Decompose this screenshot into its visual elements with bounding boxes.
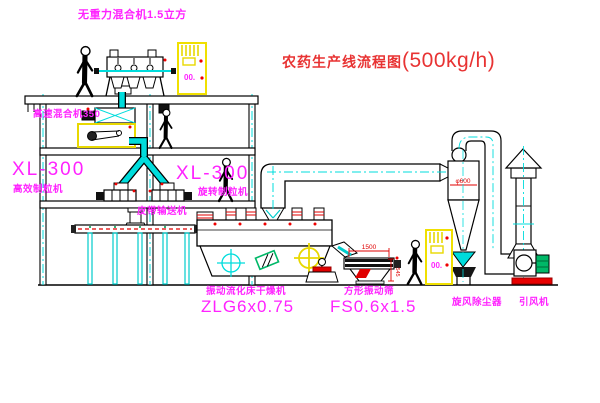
high-speed-mixer-label: 高速混合机350 bbox=[33, 110, 100, 120]
svg-text:545: 545 bbox=[394, 267, 400, 276]
diagram-title-text: 农药生产线流程图 bbox=[282, 54, 402, 70]
belt-conveyor bbox=[71, 225, 199, 284]
fan-label: 引风机 bbox=[519, 298, 549, 308]
granulator-right bbox=[149, 183, 192, 201]
gravity-mixer bbox=[94, 50, 176, 96]
control-cabinet-1: 00. bbox=[178, 43, 206, 94]
person-ground bbox=[408, 240, 422, 284]
granulator-left bbox=[96, 183, 136, 201]
person-floor2 bbox=[160, 109, 172, 148]
granulator-right-label: 旋转制粒机 bbox=[198, 188, 248, 198]
screen-label: 方形振动筛 bbox=[344, 287, 394, 297]
dryer-model-label: ZLG6x0.75 bbox=[201, 298, 294, 315]
induced-draft-fan bbox=[512, 250, 552, 284]
cyclone-label: 旋风除尘器 bbox=[452, 298, 502, 308]
dryer-label: 振动流化床干燥机 bbox=[206, 287, 286, 297]
cabinet2-display: 00. bbox=[431, 261, 442, 270]
granulator-right-model: XL-300 bbox=[176, 164, 249, 183]
control-cabinet-2: 00. bbox=[426, 230, 452, 284]
cabinet1-display: 00. bbox=[184, 73, 195, 82]
belt-conveyor-label: 皮带输送机 bbox=[137, 207, 187, 217]
exhaust-duct-main bbox=[261, 164, 462, 220]
screen-model-label: FS0.6x1.5 bbox=[330, 298, 417, 315]
svg-text:1500: 1500 bbox=[362, 244, 377, 251]
granulator-left-model: XL-300 bbox=[12, 160, 85, 179]
granulator-left-label: 高效制粒机 bbox=[13, 185, 63, 195]
gravity-mixer-label: 无重力混合机1.5立方 bbox=[78, 10, 187, 21]
diagram-title-capacity: (500kg/h) bbox=[402, 49, 495, 72]
person-top-floor bbox=[77, 47, 92, 96]
dimension-screen-length: 1500 bbox=[349, 244, 389, 257]
diagram-canvas: 00. bbox=[0, 0, 600, 403]
diagram-title: 农药生产线流程图(500kg/h) bbox=[282, 50, 495, 71]
